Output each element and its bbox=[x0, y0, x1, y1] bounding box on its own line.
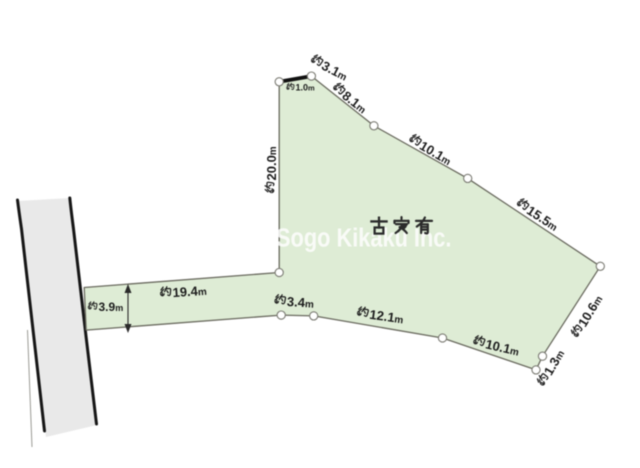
svg-text:3.9m: 3.9m bbox=[99, 300, 124, 314]
svg-text:1.0m: 1.0m bbox=[296, 83, 316, 93]
svg-text:Sogo Kikaku Inc.: Sogo Kikaku Inc. bbox=[276, 224, 451, 253]
svg-text:3.1m: 3.1m bbox=[319, 58, 350, 84]
svg-text:20.0m: 20.0m bbox=[264, 146, 279, 180]
